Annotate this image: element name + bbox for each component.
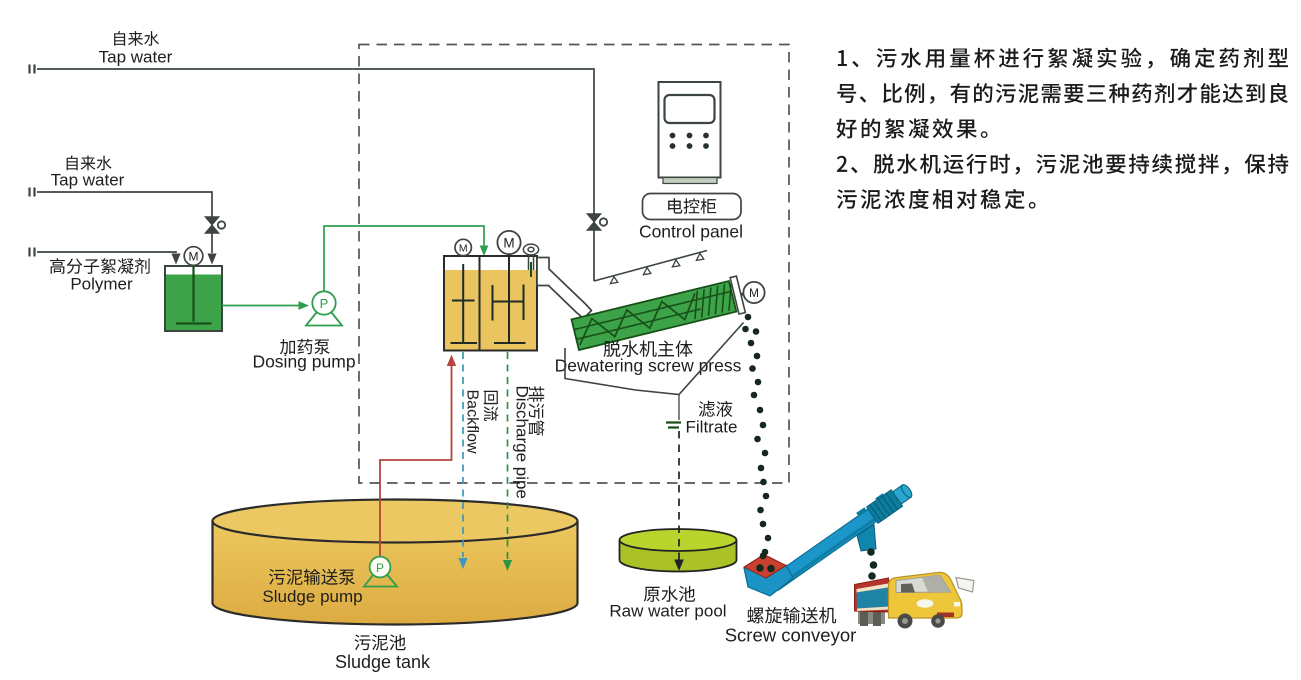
svg-text:Filtrate: Filtrate — [686, 418, 738, 437]
svg-text:P: P — [376, 561, 384, 575]
svg-text:M: M — [503, 236, 514, 251]
svg-text:Raw water pool: Raw water pool — [609, 602, 726, 621]
svg-text:Tap water: Tap water — [51, 171, 125, 190]
svg-text:M: M — [459, 243, 468, 255]
svg-text:Sludge tank: Sludge tank — [335, 652, 431, 672]
svg-text:Backflow: Backflow — [464, 390, 481, 454]
svg-text:M: M — [749, 286, 759, 300]
svg-text:M: M — [189, 250, 199, 264]
svg-text:Sludge pump: Sludge pump — [262, 587, 362, 606]
svg-text:Control panel: Control panel — [639, 222, 743, 242]
svg-text:Dosing pump: Dosing pump — [252, 352, 355, 372]
svg-text:P: P — [320, 296, 329, 311]
svg-text:Dewatering screw press: Dewatering screw press — [555, 356, 742, 376]
svg-text:Tap water: Tap water — [99, 48, 173, 67]
svg-text:Discharge pipe: Discharge pipe — [513, 386, 532, 499]
svg-text:Polymer: Polymer — [70, 275, 133, 294]
svg-text:Screw conveyor: Screw conveyor — [725, 625, 857, 646]
